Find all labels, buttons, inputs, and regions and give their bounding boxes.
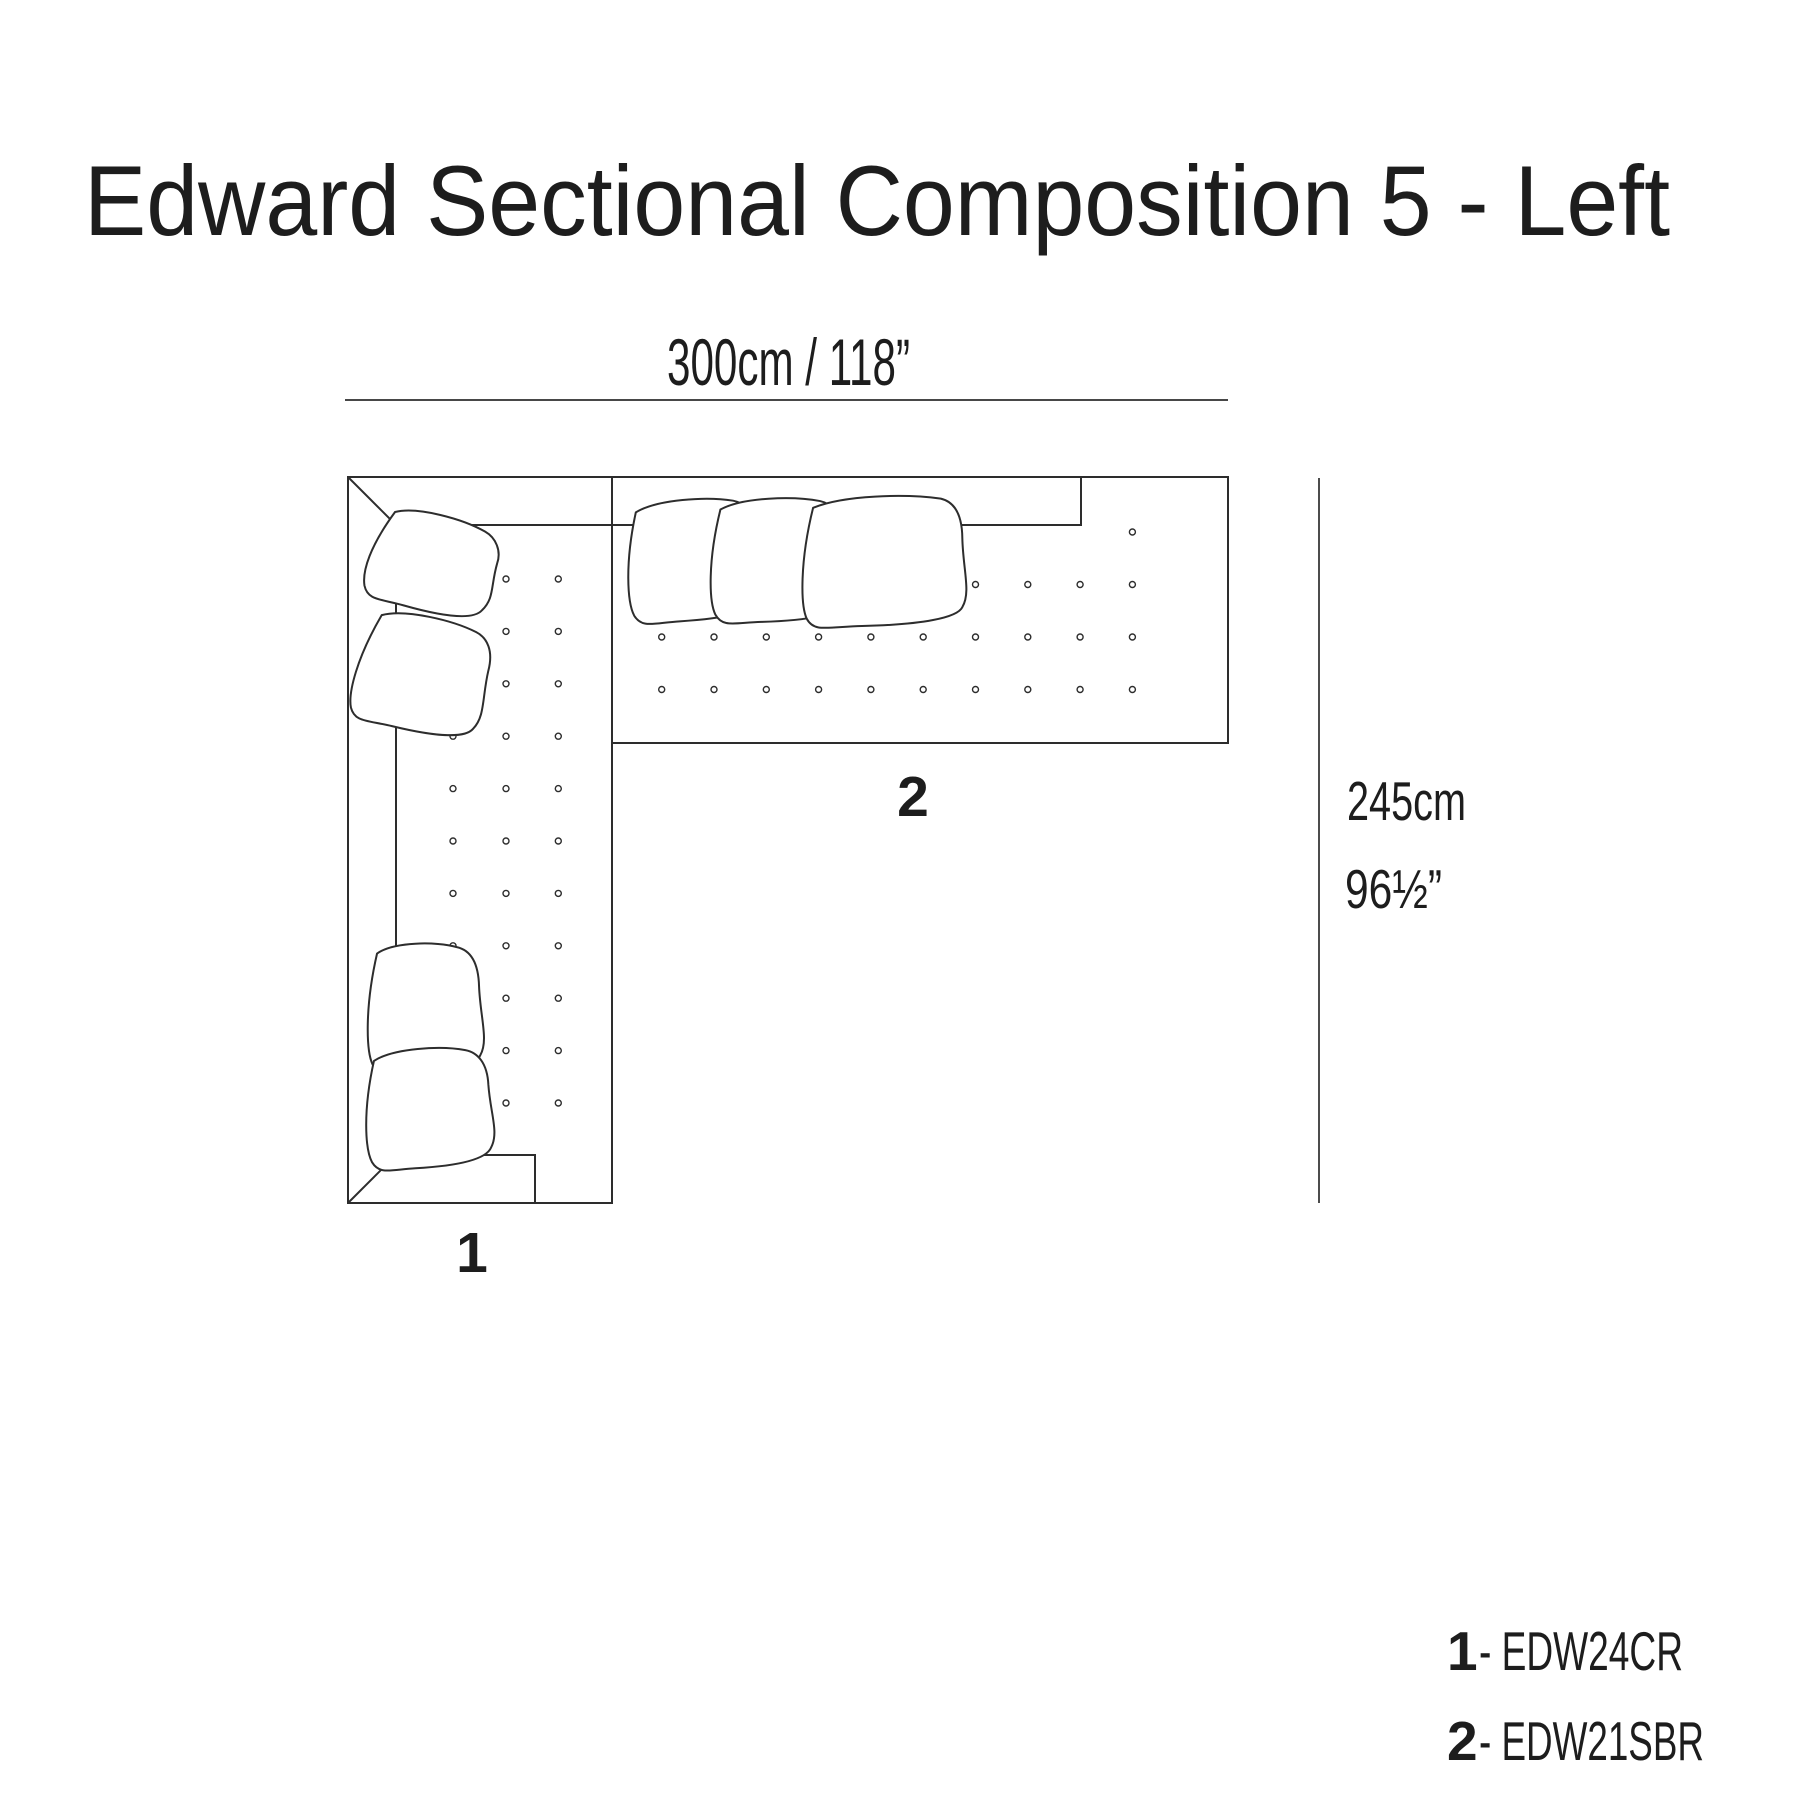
part-2-label: 2	[897, 765, 929, 829]
tufting-dot	[555, 1048, 561, 1054]
corner-mitre-top	[348, 477, 396, 525]
tufting-dot	[555, 1100, 561, 1106]
tufting-dot	[816, 687, 822, 693]
tufting-dot	[503, 1100, 509, 1106]
tufting-dot	[868, 687, 874, 693]
tufting-dot	[711, 687, 717, 693]
tufting-dot	[555, 786, 561, 792]
tufting-dot	[555, 733, 561, 739]
width-dimension-label: 300cm / 118”	[667, 325, 910, 399]
tufting-dot	[763, 634, 769, 640]
height-dimension-label-in: 96½”	[1345, 858, 1442, 920]
tufting-dot	[1025, 634, 1031, 640]
sectional-diagram-canvas: Edward Sectional Composition 5 - Left 30…	[0, 0, 1800, 1800]
tufting-dot	[503, 786, 509, 792]
tufting-dot	[659, 634, 665, 640]
tufting-dot	[973, 687, 979, 693]
legend-item-1: 1 - EDW24CR	[1447, 1620, 1683, 1682]
tufting-dot	[555, 576, 561, 582]
legend-item-1-code: - EDW24CR	[1479, 1620, 1683, 1682]
tufting-dot	[555, 681, 561, 687]
legend-item-2: 2 - EDW21SBR	[1447, 1710, 1704, 1772]
tufting-dot	[450, 786, 456, 792]
page-title: Edward Sectional Composition 5 - Left	[84, 145, 1670, 256]
tufting-dot	[973, 582, 979, 588]
part-1-label: 1	[456, 1221, 488, 1285]
tufting-dot	[503, 628, 509, 634]
legend: 1 - EDW24CR 2 - EDW21SBR	[1447, 1620, 1704, 1772]
tufting-dot	[1077, 582, 1083, 588]
tufting-dot	[711, 634, 717, 640]
tufting-dot	[503, 733, 509, 739]
back-pillow	[360, 503, 505, 623]
tufting-dot	[503, 681, 509, 687]
tufting-dot	[503, 576, 509, 582]
legend-item-1-number: 1	[1447, 1620, 1478, 1682]
tufting-dot	[503, 995, 509, 1001]
tufting-dot	[868, 634, 874, 640]
tufting-dot	[555, 838, 561, 844]
tufting-dot	[1077, 634, 1083, 640]
height-dimension-label-cm: 245cm	[1347, 770, 1466, 832]
tufting-dot	[450, 890, 456, 896]
tufting-dot	[1077, 687, 1083, 693]
tufting-dot	[920, 634, 926, 640]
tufting-dot	[1025, 582, 1031, 588]
tufting-dot	[1129, 582, 1135, 588]
tufting-dot	[973, 634, 979, 640]
tufting-dot	[1129, 687, 1135, 693]
tufting-dot	[920, 687, 926, 693]
legend-item-2-number: 2	[1447, 1710, 1478, 1772]
tufting-dot	[503, 838, 509, 844]
tufting-dot	[555, 890, 561, 896]
tufting-dot	[555, 628, 561, 634]
tufting-dot	[1129, 529, 1135, 535]
technical-drawing-page: Edward Sectional Composition 5 - Left 30…	[0, 0, 1800, 1800]
tufting-dot	[450, 838, 456, 844]
back-pillow	[794, 489, 969, 632]
tufting-dot	[503, 1048, 509, 1054]
tufting-dot	[555, 995, 561, 1001]
tufting-dot	[1129, 634, 1135, 640]
back-pillow	[355, 1040, 499, 1176]
legend-item-2-code: - EDW21SBR	[1479, 1710, 1704, 1772]
tufting-dot	[763, 687, 769, 693]
back-pillows	[347, 489, 970, 1176]
tufting-dot	[503, 890, 509, 896]
tufting-dot	[659, 687, 665, 693]
tufting-dot	[503, 943, 509, 949]
tufting-dot	[1025, 687, 1031, 693]
tufting-dot	[816, 634, 822, 640]
tufting-dot	[555, 943, 561, 949]
back-pillow	[347, 606, 496, 741]
